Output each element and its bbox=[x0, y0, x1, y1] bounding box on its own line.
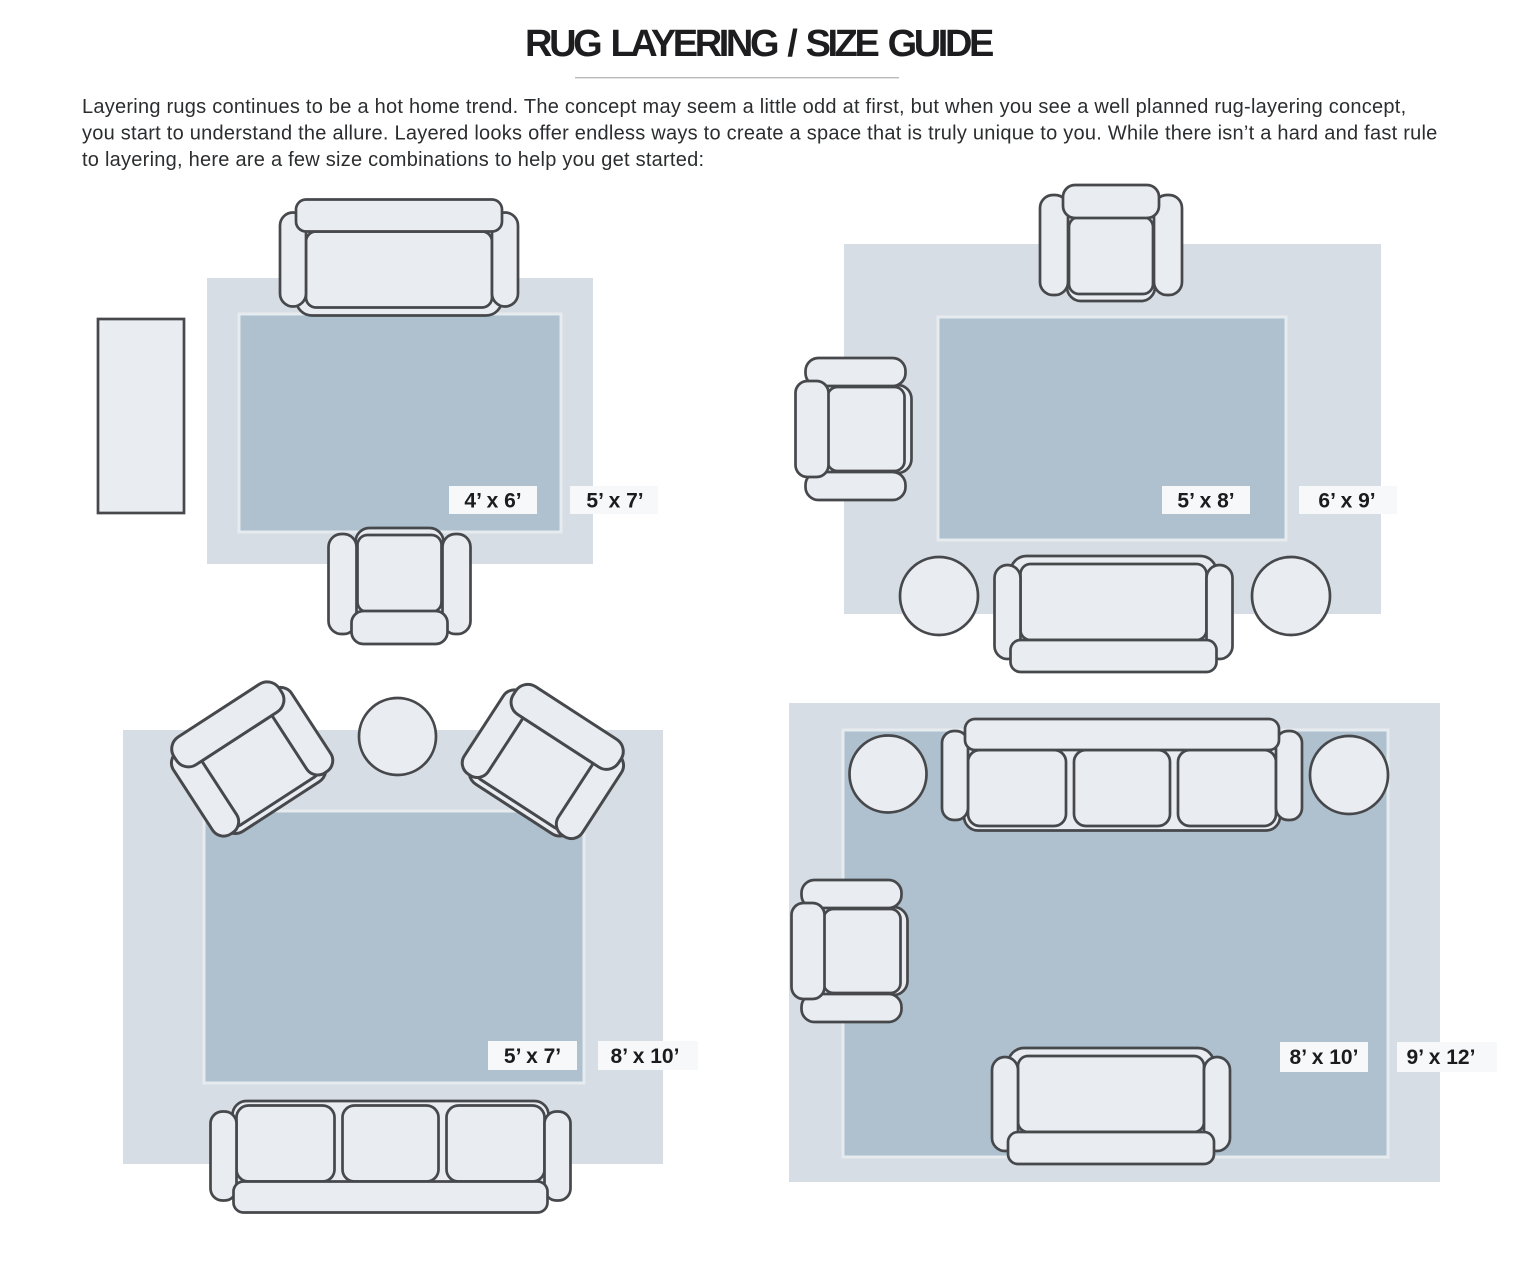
svg-text:RUG LAYERING / SIZE GUIDE: RUG LAYERING / SIZE GUIDE bbox=[525, 23, 993, 65]
svg-text:9’ x 12’: 9’ x 12’ bbox=[1407, 1046, 1476, 1069]
svg-text:5’ x 7’: 5’ x 7’ bbox=[504, 1045, 561, 1068]
svg-text:8’ x 10’: 8’ x 10’ bbox=[1290, 1046, 1359, 1069]
svg-text:5’ x 8’: 5’ x 8’ bbox=[1177, 490, 1234, 513]
svg-text:4’ x 6’: 4’ x 6’ bbox=[464, 490, 521, 513]
svg-text:5’ x 7’: 5’ x 7’ bbox=[586, 490, 643, 513]
svg-text:Layering rugs continues to be: Layering rugs continues to be a hot home… bbox=[82, 96, 1406, 118]
svg-text:to layering, here are a few si: to layering, here are a few size combina… bbox=[82, 149, 704, 171]
svg-text:6’ x 9’: 6’ x 9’ bbox=[1318, 490, 1375, 513]
svg-text:you start to understand the al: you start to understand the allure. Laye… bbox=[82, 123, 1438, 145]
svg-text:8’ x 10’: 8’ x 10’ bbox=[611, 1045, 680, 1068]
